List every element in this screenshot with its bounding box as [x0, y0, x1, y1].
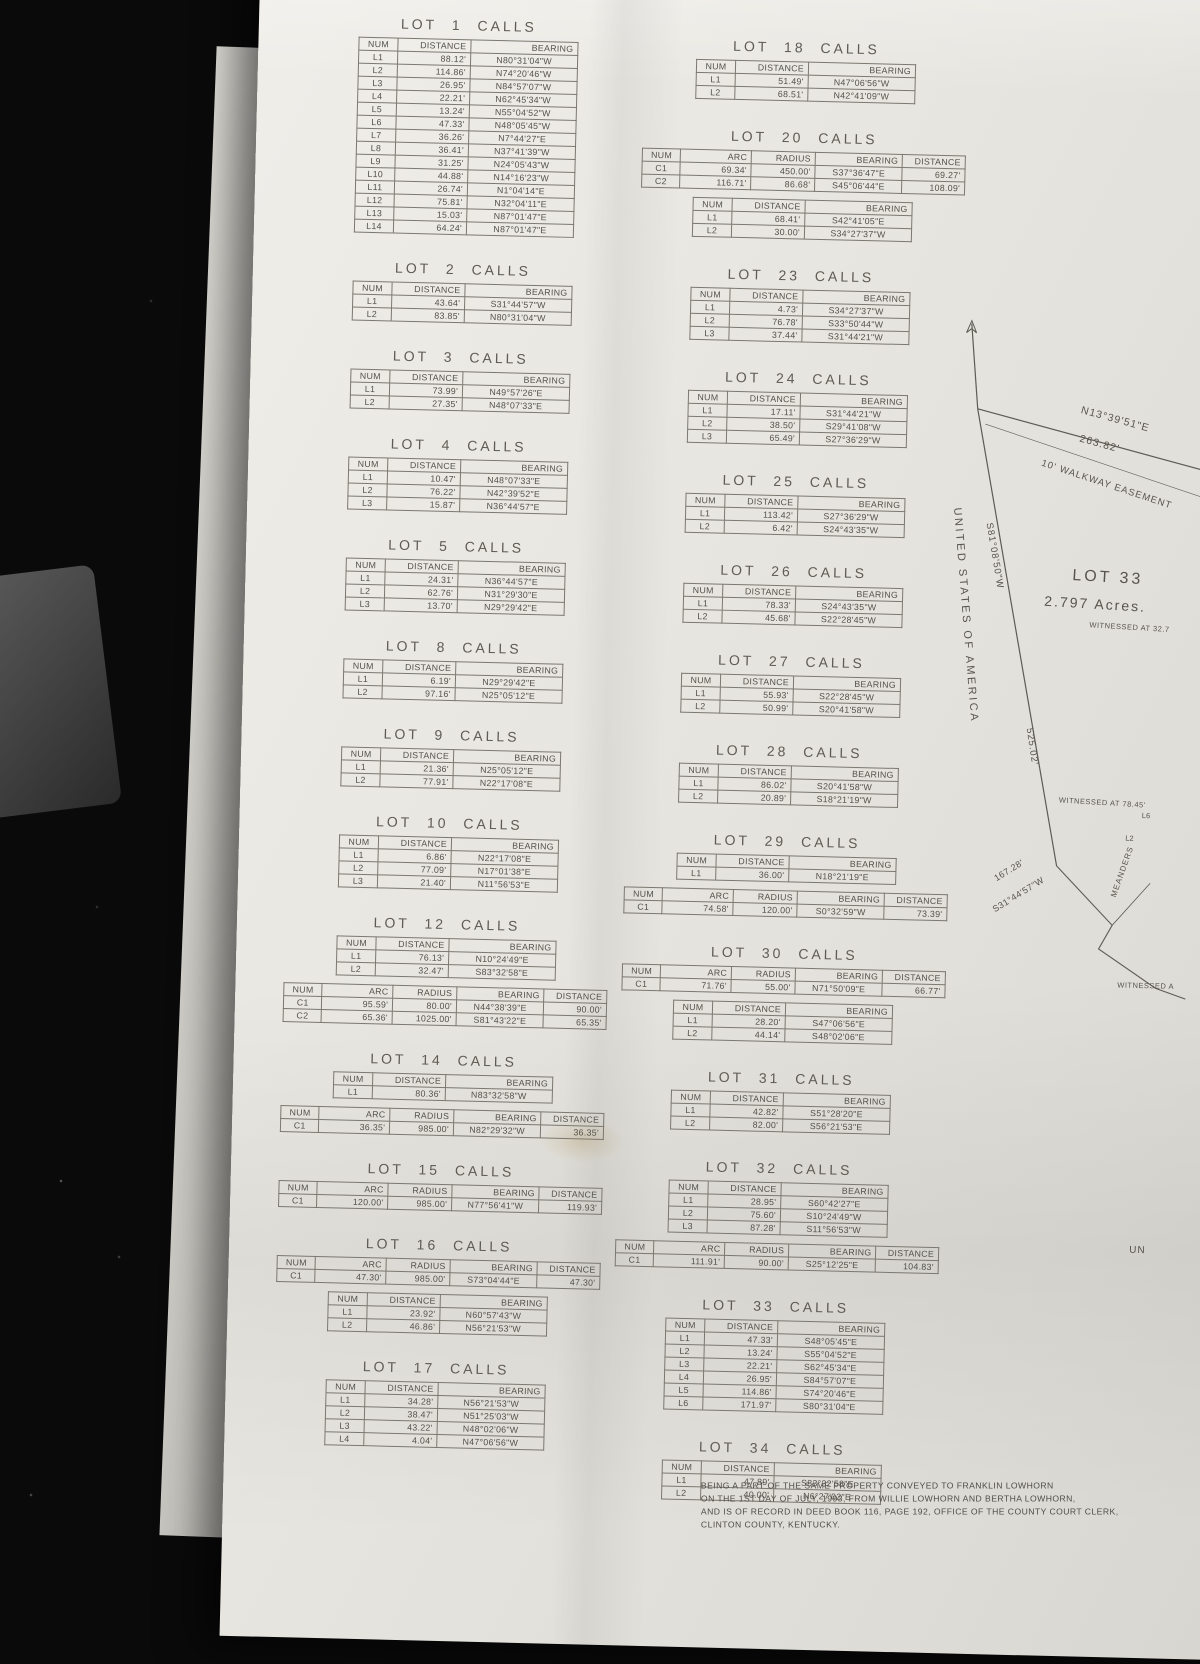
table-cell: L4 [358, 89, 397, 103]
line-calls-table: NUMDISTANCEBEARINGL186.02'S20°41'58"WL22… [678, 763, 899, 808]
table-cell: L3 [665, 1357, 704, 1371]
lot-title: LOT 12 CALLS [373, 914, 520, 934]
table-cell: L12 [355, 193, 394, 207]
curve-calls-table: NUMARCRADIUSBEARINGDISTANCEC1111.91'90.0… [615, 1239, 940, 1274]
table-cell: L1 [337, 949, 376, 963]
table-cell: N71°50'09"E [795, 981, 883, 996]
table-cell: 87.28' [707, 1220, 780, 1235]
table-cell: L2 [350, 395, 389, 409]
table-cell: N42°41'09"W [808, 88, 915, 104]
table-cell: L1 [679, 776, 718, 790]
lot-group: LOT 4 CALLSNUMDISTANCEBEARINGL110.47'N48… [347, 435, 569, 515]
line-calls-table: NUMDISTANCEBEARINGL124.31'N36°44'57"EL26… [345, 557, 566, 615]
column-header: NUM [339, 835, 378, 849]
table-cell: L1 [350, 382, 389, 396]
calls-column-2: LOT 18 CALLSNUMDISTANCEBEARINGL151.49'N4… [609, 36, 969, 1506]
table-cell: L1 [339, 848, 378, 862]
table-cell: L1 [348, 470, 387, 484]
table-cell: L3 [690, 326, 729, 340]
line-calls-table: NUMDISTANCEBEARINGL121.36'N25°05'12"EL27… [340, 746, 561, 791]
line-calls-table: NUMDISTANCEBEARINGL14.73'S34°27'37"WL276… [689, 287, 910, 345]
table-cell: 108.09' [902, 180, 965, 195]
north-distance-label: 263.82' [1078, 433, 1121, 455]
line-calls-table: NUMDISTANCEBEARINGL151.49'N47°06'56"WL26… [695, 59, 916, 104]
table-cell: N47°06'56"W [437, 1434, 544, 1450]
column-header: NUM [284, 983, 323, 997]
meander-distance-label: 167.28' [992, 857, 1025, 883]
table-cell: L2 [339, 861, 378, 875]
line-calls-table: NUMDISTANCEBEARINGL1113.42'S27°36'29"WL2… [685, 493, 906, 538]
table-cell: L2 [685, 519, 724, 533]
table-cell: 985.00' [388, 1196, 452, 1211]
table-cell: 80.36' [372, 1086, 445, 1101]
table-cell: L2 [352, 307, 391, 321]
column-header: NUM [351, 369, 390, 383]
column-header: NUM [691, 287, 730, 301]
lot-title: LOT 16 CALLS [366, 1235, 513, 1255]
table-cell: L3 [325, 1419, 364, 1433]
lot-title: LOT 8 CALLS [386, 637, 522, 656]
column-header: NUM [622, 964, 661, 978]
column-header: NUM [671, 1090, 710, 1104]
table-cell: 97.16' [382, 686, 455, 701]
table-cell: 90.00' [725, 1255, 789, 1270]
device-corner [0, 564, 122, 820]
table-cell: L2 [679, 789, 718, 803]
column-header: NUM [337, 936, 376, 950]
curve-calls-table: NUMARCRADIUSBEARINGDISTANCEC171.76'55.00… [621, 963, 946, 998]
column-header: NUM [684, 583, 723, 597]
table-cell: 30.00' [731, 224, 804, 239]
table-cell: L2 [690, 313, 729, 327]
lot-group: LOT 29 CALLSNUMDISTANCEBEARINGL136.00'N1… [623, 829, 949, 921]
lot-group: LOT 3 CALLSNUMDISTANCEBEARINGL173.99'N49… [350, 347, 571, 414]
lot-title: LOT 25 CALLS [722, 472, 869, 492]
lot-group: LOT 25 CALLSNUMDISTANCEBEARINGL1113.42'S… [685, 471, 906, 538]
table-cell: L4 [325, 1432, 364, 1446]
curve-calls-table: NUMARCRADIUSBEARINGDISTANCEC1120.00'985.… [278, 1180, 603, 1215]
owner-label: UNITED STATES OF AMERICA [951, 507, 980, 723]
table-cell: 65.35' [543, 1015, 606, 1030]
lot-33-label: LOT 33 [1072, 567, 1144, 588]
table-cell: L1 [662, 1473, 701, 1487]
table-cell: S73°04'44"E [450, 1273, 538, 1288]
lot-group: LOT 1 CALLSNUMDISTANCEBEARINGL188.12'N80… [354, 15, 579, 238]
lot-title: LOT 2 CALLS [395, 260, 531, 279]
line-calls-table: NUMDISTANCEBEARINGL178.33'S24°43'35"WL24… [682, 583, 903, 628]
lot-title: LOT 26 CALLS [720, 562, 867, 582]
line-calls-table: NUMDISTANCEBEARINGL155.93'S22°28'45"WL25… [680, 673, 901, 718]
table-cell: 120.00' [733, 903, 797, 918]
table-cell: L2 [345, 584, 384, 598]
lot-title: LOT 31 CALLS [708, 1068, 855, 1088]
lot-title: LOT 3 CALLS [393, 348, 529, 367]
curve-calls-table: NUMARCRADIUSBEARINGDISTANCEC136.35'985.0… [280, 1105, 605, 1140]
boundary-line-west [967, 409, 1068, 866]
point-l6-label: L6 [1142, 811, 1151, 820]
table-cell: 27.35' [389, 396, 462, 411]
table-cell: N77°56'41"W [451, 1198, 539, 1213]
line-calls-table: NUMDISTANCEBEARINGL188.12'N80°31'04"WL21… [354, 37, 579, 238]
table-cell: 116.71' [680, 175, 751, 190]
deed-note-line: ON THE 1ST DAY OF JULY, 1993, FROM WILLI… [701, 1492, 1200, 1505]
lot-title: LOT 32 CALLS [706, 1158, 853, 1178]
lot-33-acres-label: 2.797 Acres. [1044, 593, 1147, 615]
table-cell: 65.49' [726, 430, 799, 445]
table-cell: L1 [673, 1013, 712, 1027]
line-calls-table: NUMDISTANCEBEARINGL16.19'N29°29'42"EL297… [342, 658, 563, 703]
deed-note-line: AND IS OF RECORD IN DEED BOOK 116, PAGE … [701, 1505, 1200, 1518]
walkway-easement-label: 10' WALKWAY EASEMENT [1040, 458, 1173, 512]
lot-title: LOT 27 CALLS [718, 652, 865, 672]
curve-calls-table: NUMARCRADIUSBEARINGDISTANCEC174.58'120.0… [623, 886, 948, 921]
column-header: NUM [344, 659, 383, 673]
column-header: NUM [326, 1380, 365, 1394]
curve-calls-table: NUMARCRADIUSBEARINGDISTANCEC195.59'80.00… [283, 982, 608, 1030]
table-cell: L2 [673, 1026, 712, 1040]
lot-title: LOT 10 CALLS [376, 813, 523, 833]
lot-group: LOT 23 CALLSNUMDISTANCEBEARINGL14.73'S34… [689, 265, 911, 345]
table-cell: L1 [328, 1305, 367, 1319]
lot-title: LOT 17 CALLS [363, 1358, 510, 1378]
table-cell: 21.40' [377, 875, 450, 890]
table-cell: S81°43'22"E [456, 1013, 544, 1028]
north-bearing-label: N13°39'51"E [1080, 404, 1151, 434]
table-cell: 13.70' [384, 598, 457, 613]
table-cell: N18°21'19"E [789, 869, 896, 885]
table-cell: L1 [346, 571, 385, 585]
table-cell: 77.91' [380, 774, 453, 789]
table-cell: 37.44' [729, 327, 802, 342]
lot-group: LOT 33 CALLSNUMDISTANCEBEARINGL147.33'S4… [663, 1296, 886, 1415]
lot-group: LOT 30 CALLSNUMARCRADIUSBEARINGDISTANCEC… [620, 941, 946, 1046]
table-cell: N25°05'12"E [455, 688, 562, 704]
west-bearing-label: S81°08'50"W [984, 522, 1006, 590]
table-cell: L1 [683, 596, 722, 610]
table-cell: L1 [688, 403, 727, 417]
table-cell: 46.86' [366, 1319, 439, 1334]
lot-group: LOT 27 CALLSNUMDISTANCEBEARINGL155.93'S2… [680, 651, 901, 718]
table-cell: 15.87' [387, 497, 460, 512]
table-cell: N87°01'47"E [466, 222, 573, 238]
table-cell: 20.89' [718, 790, 791, 805]
table-cell: L2 [348, 483, 387, 497]
table-cell: 47.30' [315, 1269, 386, 1284]
table-cell: 36.35' [541, 1125, 604, 1140]
table-cell: L2 [696, 85, 735, 99]
table-cell: N36°44'57"E [460, 499, 567, 515]
table-cell: N80°31'04"W [464, 310, 571, 326]
table-cell: L1 [671, 1103, 710, 1117]
table-cell: L2 [661, 1486, 700, 1500]
dust-specks [0, 0, 2, 2]
table-cell: L2 [688, 416, 727, 430]
column-header: NUM [359, 37, 398, 51]
lot-group: LOT 10 CALLSNUMDISTANCEBEARINGL16.86'N22… [338, 812, 560, 892]
table-cell: 4.04' [364, 1433, 437, 1448]
table-cell: 120.00' [317, 1194, 388, 1209]
lot-title: LOT 15 CALLS [367, 1160, 514, 1180]
column-header: NUM [279, 1181, 318, 1195]
table-cell: C1 [622, 977, 661, 991]
lot-group: LOT 14 CALLSNUMDISTANCEBEARINGL180.36'N8… [280, 1048, 606, 1140]
deed-note-line: BEING A PART OF THE SAME PROPERTY CONVEY… [701, 1480, 1200, 1493]
table-cell: C2 [283, 1009, 322, 1023]
lot-group: LOT 20 CALLSNUMARCRADIUSBEARINGDISTANCEC… [640, 126, 967, 244]
table-cell: L1 [677, 866, 716, 880]
table-cell: L1 [343, 672, 382, 686]
table-cell: L5 [357, 102, 396, 116]
table-cell: S11°56'53"W [780, 1222, 887, 1238]
table-cell: 36.35' [319, 1119, 390, 1134]
survey-paper: LOT 1 CALLSNUMDISTANCEBEARINGL188.12'N80… [220, 0, 1200, 1664]
line-calls-table: NUMDISTANCEBEARINGL147.33'S48°05'45"EL21… [663, 1317, 885, 1414]
lot-group: LOT 24 CALLSNUMDISTANCEBEARINGL117.11'S3… [687, 368, 909, 448]
lot-group: LOT 9 CALLSNUMDISTANCEBEARINGL121.36'N25… [340, 724, 561, 791]
table-cell: L6 [357, 115, 396, 129]
line-calls-table: NUMDISTANCEBEARINGL117.11'S31°44'21"WL23… [687, 390, 908, 448]
table-cell: L1 [353, 294, 392, 308]
table-cell: S20°41'58"W [793, 702, 900, 718]
column-header: NUM [679, 763, 718, 777]
table-cell: L9 [356, 154, 395, 168]
table-cell: S27°36'29"W [799, 432, 906, 448]
table-cell: L1 [326, 1393, 365, 1407]
meanders-label: MEANDERS [1109, 845, 1135, 898]
edge-fragment-label: UN [1129, 1245, 1146, 1256]
column-header: NUM [696, 59, 735, 73]
table-cell: L2 [683, 609, 722, 623]
table-cell: 83.85' [391, 308, 464, 323]
table-cell: L2 [328, 1318, 367, 1332]
column-header: NUM [349, 457, 388, 471]
table-cell: 55.00' [731, 980, 795, 995]
table-cell: 86.68' [751, 177, 815, 192]
table-cell: L4 [664, 1370, 703, 1384]
lot-title: LOT 18 CALLS [733, 38, 880, 58]
column-header: NUM [353, 281, 392, 295]
lot-title: LOT 24 CALLS [725, 369, 872, 389]
witnessed-a-label: WITNESSED A [1117, 980, 1174, 990]
line-calls-table: NUMDISTANCEBEARINGL180.36'N83°32'58"W [333, 1071, 554, 1103]
table-cell: L11 [355, 180, 394, 194]
table-cell: L5 [664, 1383, 703, 1397]
calls-column-1: LOT 1 CALLSNUMDISTANCEBEARINGL188.12'N80… [272, 13, 631, 1451]
table-cell: L3 [687, 429, 726, 443]
table-cell: L14 [354, 219, 393, 233]
table-cell: 45.68' [722, 610, 795, 625]
table-cell: S25°12'25"E [788, 1257, 876, 1272]
table-cell: 985.00' [389, 1121, 453, 1136]
table-cell: L1 [693, 210, 732, 224]
table-cell: C2 [642, 174, 681, 188]
table-cell: 68.51' [735, 86, 808, 101]
line-calls-table: NUMDISTANCEBEARINGL123.92'N60°57'43"WL24… [327, 1291, 548, 1336]
line-calls-table: NUMDISTANCEBEARINGL110.47'N48°07'33"EL27… [347, 456, 568, 514]
table-cell: 65.36' [321, 1010, 392, 1025]
column-header: NUM [334, 1072, 373, 1086]
table-cell: C1 [283, 996, 322, 1010]
table-cell: L2 [343, 685, 382, 699]
column-header: NUM [277, 1255, 316, 1269]
boundary-line-north [970, 324, 980, 409]
column-header: NUM [669, 1180, 708, 1194]
table-cell: 64.24' [393, 220, 466, 235]
column-header: NUM [281, 1106, 320, 1120]
table-cell: C1 [280, 1119, 319, 1133]
curve-calls-table: NUMARCRADIUSBEARINGDISTANCEC169.34'450.0… [641, 148, 966, 196]
lot-title: LOT 30 CALLS [711, 944, 858, 964]
table-cell: 985.00' [386, 1271, 450, 1286]
table-cell: 74.58' [662, 901, 733, 916]
table-cell: L1 [685, 506, 724, 520]
lot-title: LOT 33 CALLS [702, 1296, 849, 1316]
line-calls-table: NUMDISTANCEBEARINGL134.28'N56°21'53"WL23… [324, 1379, 546, 1450]
table-cell: L1 [665, 1331, 704, 1345]
lot-title: LOT 28 CALLS [716, 742, 863, 762]
table-cell: S24°43'35"W [797, 522, 904, 538]
table-cell: 111.91' [654, 1254, 725, 1269]
table-cell: 6.42' [724, 520, 797, 535]
lot-group: LOT 31 CALLSNUMDISTANCEBEARINGL142.82'S5… [670, 1068, 891, 1135]
table-cell: 71.76' [660, 978, 731, 993]
lot-group: LOT 26 CALLSNUMDISTANCEBEARINGL178.33'S2… [682, 561, 903, 628]
table-cell: S56°21'53"E [783, 1119, 890, 1135]
column-header: NUM [341, 747, 380, 761]
line-calls-table: NUMDISTANCEBEARINGL142.82'S51°28'20"EL28… [670, 1090, 891, 1135]
table-cell: S22°28'45"W [795, 612, 902, 628]
table-cell: L2 [671, 1116, 710, 1130]
table-cell: S18°21'19"W [790, 792, 897, 808]
table-cell: L13 [355, 206, 394, 220]
lot-group: LOT 32 CALLSNUMDISTANCEBEARINGL128.95'S6… [615, 1156, 942, 1274]
table-cell: L8 [356, 141, 395, 155]
lot-group: LOT 5 CALLSNUMDISTANCEBEARINGL124.31'N36… [345, 535, 567, 615]
plat-map: N13°39'51"E 263.82' 10' WALKWAY EASEMENT… [917, 293, 1200, 1363]
line-calls-table: NUMDISTANCEBEARINGL168.41'S42°41'05"EL23… [692, 197, 913, 242]
table-cell: L7 [357, 128, 396, 142]
deed-reference-note: BEING A PART OF THE SAME PROPERTY CONVEY… [701, 1480, 1200, 1532]
table-cell: 36.00' [716, 867, 789, 882]
table-cell: L2 [325, 1406, 364, 1420]
lot-group: LOT 16 CALLSNUMARCRADIUSBEARINGDISTANCEC… [275, 1233, 601, 1338]
table-cell: L2 [358, 63, 397, 77]
lot-title: LOT 23 CALLS [727, 266, 874, 286]
lot-group: LOT 17 CALLSNUMDISTANCEBEARINGL134.28'N5… [324, 1357, 546, 1450]
table-cell: L3 [358, 76, 397, 90]
column-header: NUM [642, 148, 681, 162]
table-cell: C1 [624, 900, 663, 914]
table-cell: N22°17'08"E [453, 776, 560, 792]
table-cell: S0°32'59"W [797, 904, 885, 919]
table-cell: N29°29'42"E [457, 600, 564, 616]
table-cell: L3 [668, 1219, 707, 1233]
table-cell: L2 [336, 962, 375, 976]
column-header: NUM [686, 493, 725, 507]
column-header: NUM [677, 853, 716, 867]
line-calls-table: NUMDISTANCEBEARINGL173.99'N49°57'26"EL22… [350, 369, 571, 414]
table-cell: C1 [615, 1253, 654, 1267]
lot-group: LOT 28 CALLSNUMDISTANCEBEARINGL186.02'S2… [678, 741, 899, 808]
column-header: NUM [666, 1318, 705, 1332]
column-header: NUM [662, 1460, 701, 1474]
lot-group: LOT 12 CALLSNUMDISTANCEBEARINGL176.13'N1… [283, 912, 610, 1030]
lot-title: LOT 14 CALLS [370, 1050, 517, 1070]
table-cell: 1025.00' [392, 1011, 456, 1026]
column-header: NUM [616, 1240, 655, 1254]
table-cell: L2 [681, 699, 720, 713]
lot-title: LOT 1 CALLS [401, 16, 537, 35]
south-distance-label: 525.02' [1024, 727, 1041, 766]
table-cell: C1 [277, 1268, 316, 1282]
table-cell: N48°07'33"E [462, 398, 569, 414]
table-cell: 44.14' [712, 1027, 785, 1042]
curve-calls-table: NUMARCRADIUSBEARINGDISTANCEC147.30'985.0… [276, 1255, 601, 1290]
table-cell: 119.93' [539, 1200, 602, 1215]
table-cell: L1 [681, 686, 720, 700]
table-cell: S45°06'44"E [815, 178, 903, 193]
lot-group: LOT 8 CALLSNUMDISTANCEBEARINGL16.19'N29°… [342, 636, 563, 703]
line-calls-table: NUMDISTANCEBEARINGL128.95'S60°42'27"EL27… [668, 1180, 889, 1238]
witnessed-78-label: WITNESSED AT 78.45' [1059, 795, 1146, 809]
lot-title: LOT 20 CALLS [731, 128, 878, 148]
table-cell: S80°31'04"E [776, 1399, 883, 1415]
lot-title: LOT 9 CALLS [383, 725, 519, 744]
table-cell: 47.30' [537, 1275, 600, 1290]
deed-note-line: CLINTON COUNTY, KENTUCKY. [701, 1518, 1200, 1531]
table-cell: N83°32'58"W [445, 1088, 552, 1104]
column-header: NUM [681, 673, 720, 687]
witnessed-32-label: WITNESSED AT 32.7 [1089, 620, 1170, 634]
column-header: NUM [693, 197, 732, 211]
lot-title: LOT 4 CALLS [391, 436, 527, 455]
table-cell: L1 [690, 300, 729, 314]
lot-group: LOT 18 CALLSNUMDISTANCEBEARINGL151.49'N4… [695, 37, 916, 104]
column-header: NUM [688, 390, 727, 404]
table-cell: C1 [279, 1194, 318, 1208]
table-cell: C1 [642, 161, 681, 175]
lot-title: LOT 34 CALLS [699, 1438, 846, 1458]
table-cell: L1 [333, 1085, 372, 1099]
table-cell: N82°29'32"W [453, 1123, 541, 1138]
table-cell: L2 [341, 773, 380, 787]
point-l2-label: L2 [1125, 834, 1134, 843]
lot-group: LOT 2 CALLSNUMDISTANCEBEARINGL143.64'S31… [352, 259, 573, 326]
column-header: NUM [346, 558, 385, 572]
column-header: NUM [328, 1292, 367, 1306]
line-calls-table: NUMDISTANCEBEARINGL136.00'N18°21'19"E [676, 853, 897, 885]
table-cell: L2 [665, 1344, 704, 1358]
table-cell: S34°27'37"W [804, 226, 911, 242]
table-cell: L3 [348, 496, 387, 510]
table-cell: 32.47' [375, 963, 448, 978]
table-cell: L6 [664, 1396, 703, 1410]
table-cell: L1 [341, 760, 380, 774]
table-cell: 50.99' [720, 700, 793, 715]
table-cell: L3 [345, 597, 384, 611]
line-calls-table: NUMDISTANCEBEARINGL16.86'N22°17'08"EL277… [338, 834, 559, 892]
column-header: NUM [624, 887, 663, 901]
table-cell: 171.97' [703, 1397, 776, 1412]
table-cell: S31°44'21"W [802, 329, 909, 345]
table-cell: L2 [692, 223, 731, 237]
line-calls-table: NUMDISTANCEBEARINGL143.64'S31°44'57"WL28… [352, 281, 573, 326]
table-cell: 82.00' [710, 1117, 783, 1132]
table-cell: L2 [668, 1206, 707, 1220]
table-cell: L1 [669, 1193, 708, 1207]
line-calls-table: NUMDISTANCEBEARINGL176.13'N10°24'49"EL23… [336, 935, 557, 980]
table-cell: L1 [358, 50, 397, 64]
